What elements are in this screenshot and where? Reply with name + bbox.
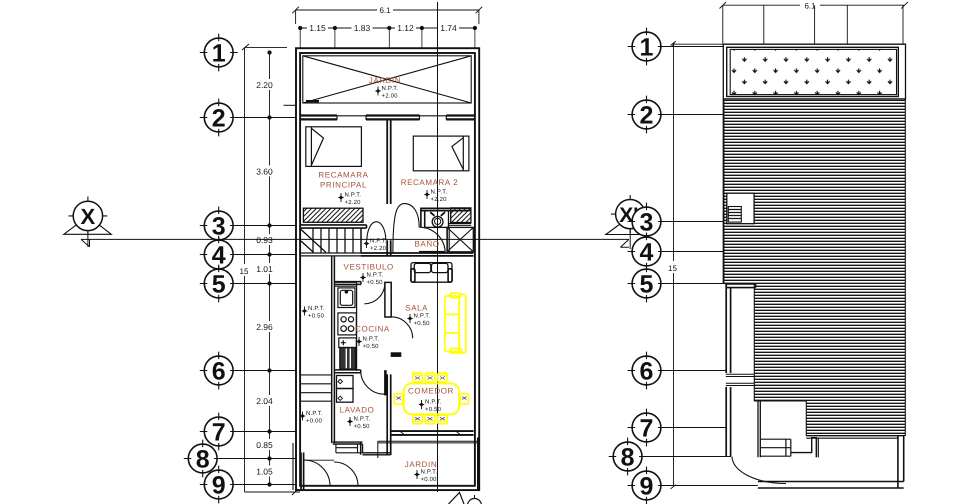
svg-text:7: 7 — [640, 415, 654, 443]
svg-text:15: 15 — [668, 264, 677, 273]
svg-text:+2.20: +2.20 — [370, 245, 387, 252]
svg-text:JARDIN: JARDIN — [369, 76, 402, 85]
svg-text:+0.50: +0.50 — [414, 320, 431, 327]
svg-text:N.P.T.: N.P.T. — [431, 189, 448, 196]
svg-text:+2.20: +2.20 — [345, 199, 362, 206]
svg-text:N.P.T.: N.P.T. — [370, 238, 387, 245]
svg-text:SALA: SALA — [405, 304, 428, 313]
svg-text:1.01: 1.01 — [256, 264, 273, 274]
svg-text:+0.00: +0.00 — [421, 476, 438, 483]
svg-text:3: 3 — [640, 209, 654, 237]
svg-text:1: 1 — [212, 40, 226, 68]
svg-text:9: 9 — [640, 473, 654, 501]
svg-text:+2.20: +2.20 — [431, 196, 448, 203]
svg-text:VESTIBULO: VESTIBULO — [344, 263, 394, 272]
svg-text:+0.50: +0.50 — [367, 279, 384, 286]
svg-text:+0.50: +0.50 — [363, 343, 380, 350]
svg-text:N.P.T.: N.P.T. — [421, 469, 438, 476]
svg-text:+0.00: +0.00 — [306, 418, 323, 425]
svg-text:1: 1 — [640, 34, 654, 62]
svg-text:1.15: 1.15 — [309, 23, 326, 33]
svg-text:+0.50: +0.50 — [308, 313, 325, 320]
svg-text:2: 2 — [640, 102, 654, 130]
svg-text:9: 9 — [212, 472, 226, 500]
svg-text:RECAMARA 2: RECAMARA 2 — [401, 178, 459, 187]
svg-text:15: 15 — [240, 267, 249, 276]
svg-text:N.P.T.: N.P.T. — [306, 410, 323, 417]
svg-text:LAVADO: LAVADO — [340, 406, 375, 415]
svg-text:2.96: 2.96 — [256, 322, 273, 332]
svg-text:N.P.T.: N.P.T. — [308, 305, 325, 312]
svg-text:1.74: 1.74 — [440, 23, 457, 33]
svg-text:N.P.T.: N.P.T. — [425, 399, 442, 406]
svg-text:COMEDOR: COMEDOR — [408, 387, 454, 396]
svg-text:RECAMARA: RECAMARA — [318, 171, 368, 180]
svg-text:+2.00: +2.00 — [382, 93, 399, 100]
svg-text:6: 6 — [212, 358, 226, 386]
svg-text:6.1: 6.1 — [804, 2, 816, 11]
svg-text:2.04: 2.04 — [256, 396, 273, 406]
svg-text:1.12: 1.12 — [397, 23, 414, 33]
svg-text:N.P.T.: N.P.T. — [363, 336, 380, 343]
svg-text:N.P.T.: N.P.T. — [367, 272, 384, 279]
svg-text:X: X — [81, 204, 96, 229]
svg-text:5: 5 — [640, 271, 654, 299]
svg-text:2: 2 — [212, 105, 226, 133]
svg-text:5: 5 — [212, 271, 226, 299]
svg-text:6: 6 — [640, 358, 654, 386]
svg-text:JARDIN: JARDIN — [405, 460, 438, 469]
svg-text:4: 4 — [640, 239, 654, 267]
svg-text:N.P.T.: N.P.T. — [382, 85, 399, 92]
svg-text:2.20: 2.20 — [256, 80, 273, 90]
svg-text:0.93: 0.93 — [256, 235, 273, 245]
svg-text:7: 7 — [212, 419, 226, 447]
svg-text:6.1: 6.1 — [379, 6, 391, 15]
svg-text:N.P.T.: N.P.T. — [414, 313, 431, 320]
svg-text:N.P.T.: N.P.T. — [345, 192, 362, 199]
svg-text:PRINCIPAL: PRINCIPAL — [320, 181, 367, 190]
svg-text:8: 8 — [621, 444, 635, 472]
svg-text:0.85: 0.85 — [256, 440, 273, 450]
svg-text:3.60: 3.60 — [256, 167, 273, 177]
svg-text:+0.50: +0.50 — [354, 423, 371, 430]
svg-text:1.05: 1.05 — [256, 467, 273, 477]
svg-text:8: 8 — [196, 446, 210, 474]
svg-text:BAÑO: BAÑO — [414, 238, 439, 248]
svg-text:N.P.T.: N.P.T. — [354, 416, 371, 423]
svg-text:1.83: 1.83 — [354, 23, 371, 33]
svg-text:COCINA: COCINA — [355, 325, 390, 334]
svg-text:+0.50: +0.50 — [425, 406, 442, 413]
